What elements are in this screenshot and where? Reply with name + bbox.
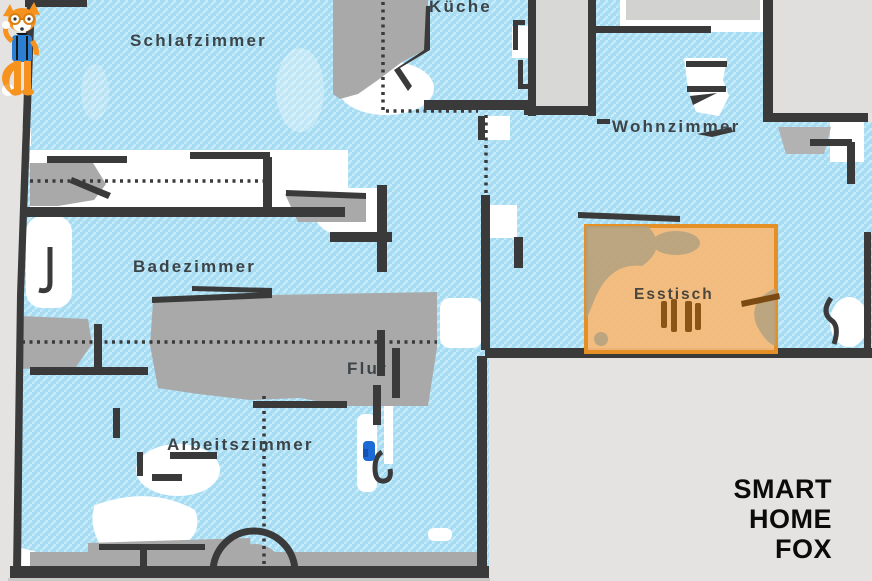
watermark-line-2: HOME [734, 504, 833, 534]
room-label-wohnzimmer: Wohnzimmer [612, 117, 740, 136]
room-label-schlafzimmer: Schlafzimmer [130, 31, 267, 50]
room-label-arbeitszimmer: Arbeitszimmer [167, 435, 314, 454]
fox-mascot-icon [0, 0, 52, 104]
dock-marker [363, 441, 375, 461]
esstisch-zone[interactable]: Esstisch [586, 226, 780, 352]
room-label-kueche: Küche [429, 0, 492, 16]
room-label-badezimmer: Badezimmer [133, 257, 256, 276]
floorplan-map[interactable]: Flur [0, 0, 872, 581]
watermark-line-3: FOX [734, 534, 833, 564]
smart-home-fox-watermark: SMART HOME FOX [734, 474, 833, 564]
watermark-line-1: SMART [734, 474, 833, 504]
zone-label-esstisch: Esstisch [634, 286, 714, 303]
